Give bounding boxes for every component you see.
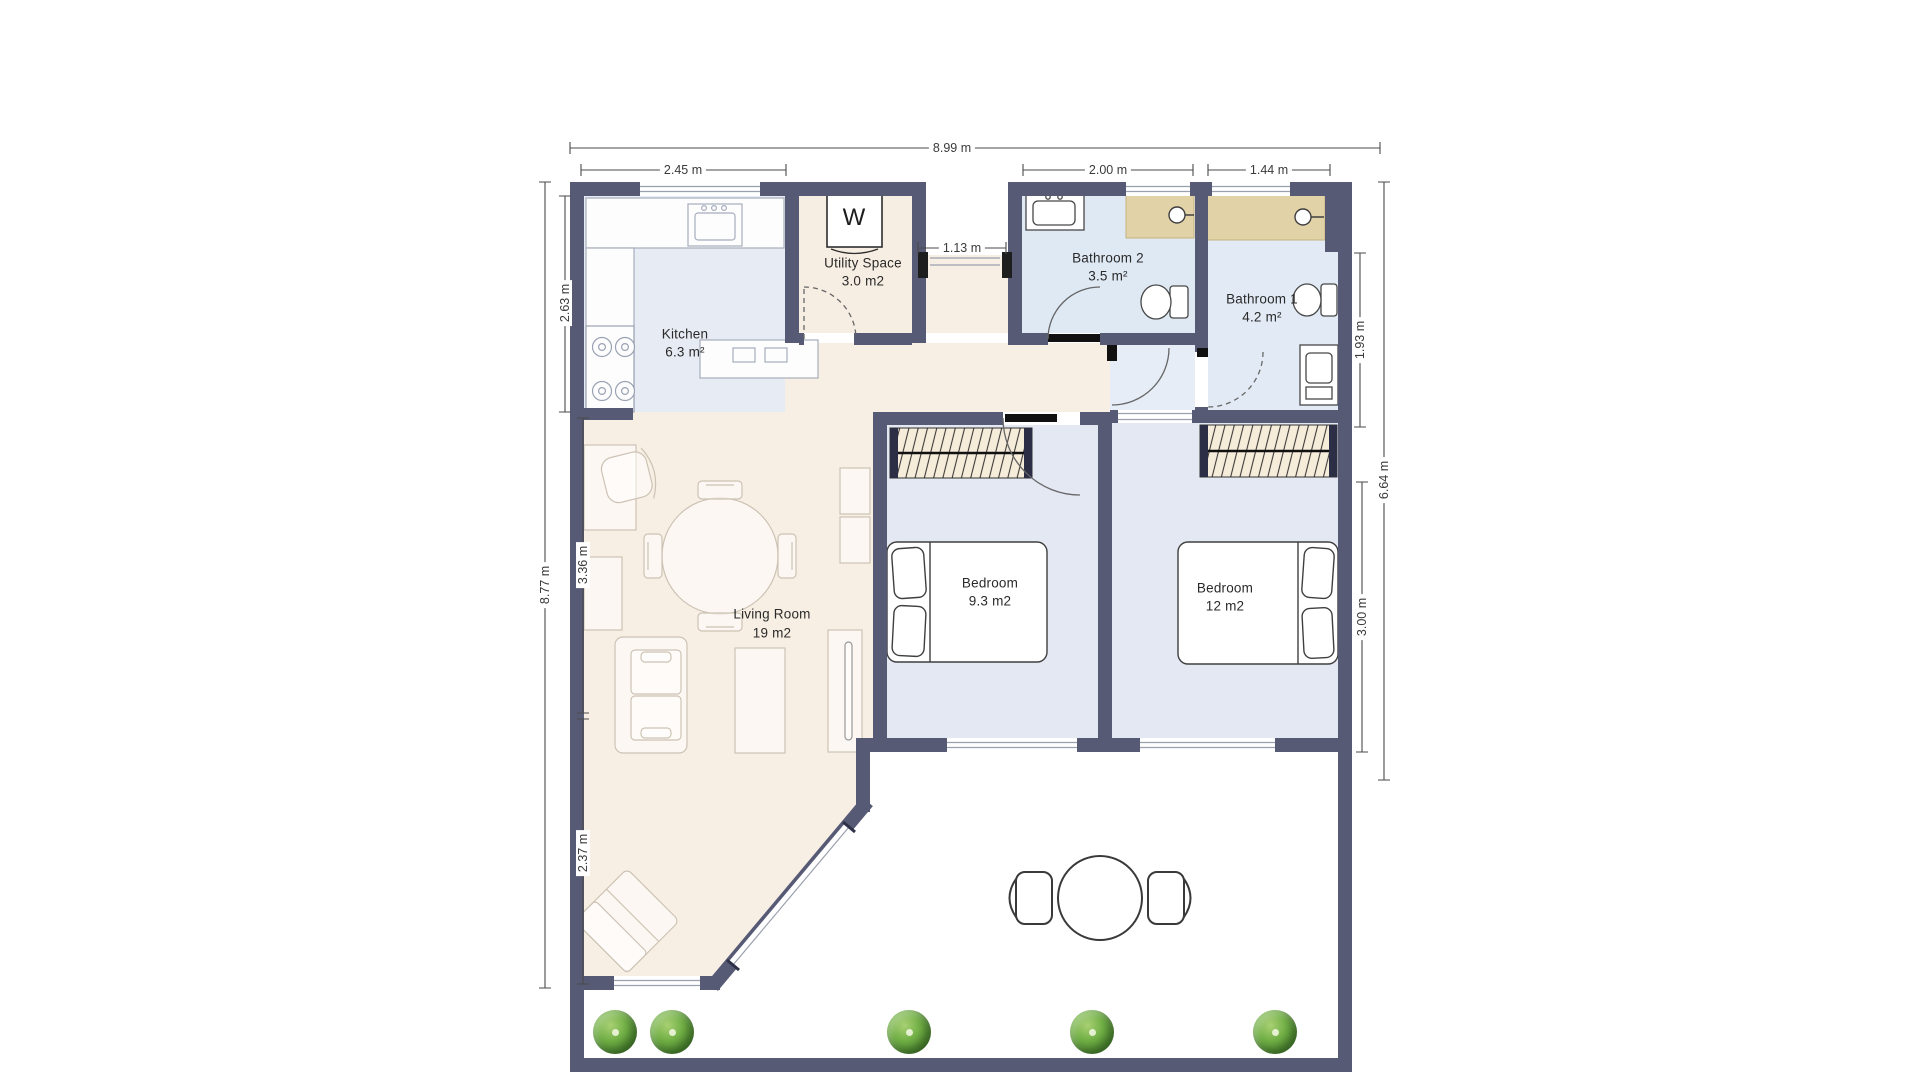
shelf-unit [840, 517, 870, 563]
bathroom1-label: Bathroom 1 [1226, 292, 1298, 307]
bathroom1-vanity [1300, 345, 1338, 405]
bathroom2-window [1126, 182, 1190, 196]
bedroom2-label: Bedroom [1197, 581, 1253, 596]
entry-jamb [918, 252, 928, 278]
dim-bathroom2-width: 2.00 m [1085, 163, 1131, 177]
kitchen-area-label: 6.3 m² [665, 345, 704, 360]
tree-icon [1070, 1010, 1114, 1054]
utility-area-label: 3.0 m2 [842, 274, 884, 289]
hallway-floor [785, 343, 1110, 412]
bedroom1-bed [887, 542, 1047, 662]
bathroom1-inner-wall [1325, 182, 1338, 252]
bathroom-divider-wall [1195, 182, 1208, 352]
terrace-chair-left [1010, 872, 1053, 924]
bathroom2-vanity [1026, 194, 1084, 230]
kitchen-peninsula [700, 340, 818, 378]
left-wall [570, 182, 584, 1072]
dim-entry-opening: 1.13 m [939, 241, 985, 255]
dim-bathroom1-width: 1.44 m [1246, 163, 1292, 177]
terrace-chair-right [1148, 872, 1191, 924]
kitchen-counter-top [586, 198, 784, 248]
bedroom2-wardrobe [1200, 425, 1337, 477]
kitchen-label: Kitchen [662, 327, 708, 342]
terrace-table [1058, 856, 1142, 940]
bedroom2-opening [1118, 414, 1192, 420]
bedroom1-window [947, 738, 1077, 752]
bathroom2-bottom-wall [1100, 333, 1195, 345]
dim-living-lower: 2.37 m [576, 830, 590, 876]
terrace-furniture [1010, 856, 1191, 940]
dining-table [662, 498, 778, 614]
bathroom2-label: Bathroom 2 [1072, 251, 1144, 266]
bedroom2-top-wall [1192, 410, 1352, 423]
living-room-label: Living Room [733, 607, 810, 622]
bedroom2-bed [1178, 542, 1338, 664]
bathroom2-toilet [1141, 285, 1188, 319]
entry-jamb [1002, 252, 1012, 278]
dim-bathroom1-height: 1.93 m [1353, 317, 1367, 363]
washer-label: W [843, 204, 866, 232]
dim-right-total: 6.64 m [1377, 457, 1391, 503]
tv-console [828, 630, 862, 752]
sofa [615, 637, 687, 753]
floor-plan: W Kitchen 6.3 m² Utility Space 3.0 m2 Ba… [0, 0, 1920, 1080]
floor-plan-drawing [0, 0, 1920, 1080]
kitchen-sink [688, 204, 742, 246]
tree-icon [593, 1010, 637, 1054]
bedroom2-window [1140, 738, 1275, 752]
shower-head-icon [1169, 207, 1185, 223]
dim-bedroom-height: 3.00 m [1355, 594, 1369, 640]
utility-label: Utility Space [824, 256, 902, 271]
bathroom1-window [1212, 182, 1290, 196]
right-wall [1338, 182, 1352, 1072]
kitchen-right-wall [785, 196, 799, 343]
coffee-table [735, 648, 785, 753]
kitchen-stove [586, 326, 635, 412]
shower-head-icon [1295, 209, 1311, 225]
utility-bottom-wall [854, 333, 912, 345]
bedroom1-left-wall [873, 412, 887, 752]
bathroom1-toilet [1293, 284, 1337, 316]
bedroom-bottom-wall [856, 738, 1352, 752]
dim-kitchen-width: 2.45 m [660, 163, 706, 177]
inter-bedroom-wall [1098, 412, 1112, 752]
corridor-floor [1110, 345, 1195, 410]
bedroom1-area-label: 9.3 m2 [969, 594, 1011, 609]
tree-icon [650, 1010, 694, 1054]
bedroom1-top-wall [873, 412, 1003, 425]
bedroom2-area-label: 12 m2 [1206, 599, 1245, 614]
bedroom1-label: Bedroom [962, 576, 1018, 591]
shelf-unit [840, 468, 870, 514]
tree-icon [1253, 1010, 1297, 1054]
dim-left-total: 8.77 m [538, 562, 552, 608]
kitchen-window [640, 182, 760, 196]
dim-living-mid: 3.36 m [576, 542, 590, 588]
dim-overall-width: 8.99 m [929, 141, 975, 155]
terrace-bottom-wall [570, 1058, 1352, 1072]
tree-icon [887, 1010, 931, 1054]
dim-kitchen-height: 2.63 m [558, 280, 572, 326]
living-room-area-label: 19 m2 [753, 626, 792, 641]
entry-floor [926, 255, 1008, 333]
bathroom2-area-label: 3.5 m² [1088, 269, 1127, 284]
bathroom1-area-label: 4.2 m² [1242, 310, 1281, 325]
living-window [614, 976, 700, 990]
